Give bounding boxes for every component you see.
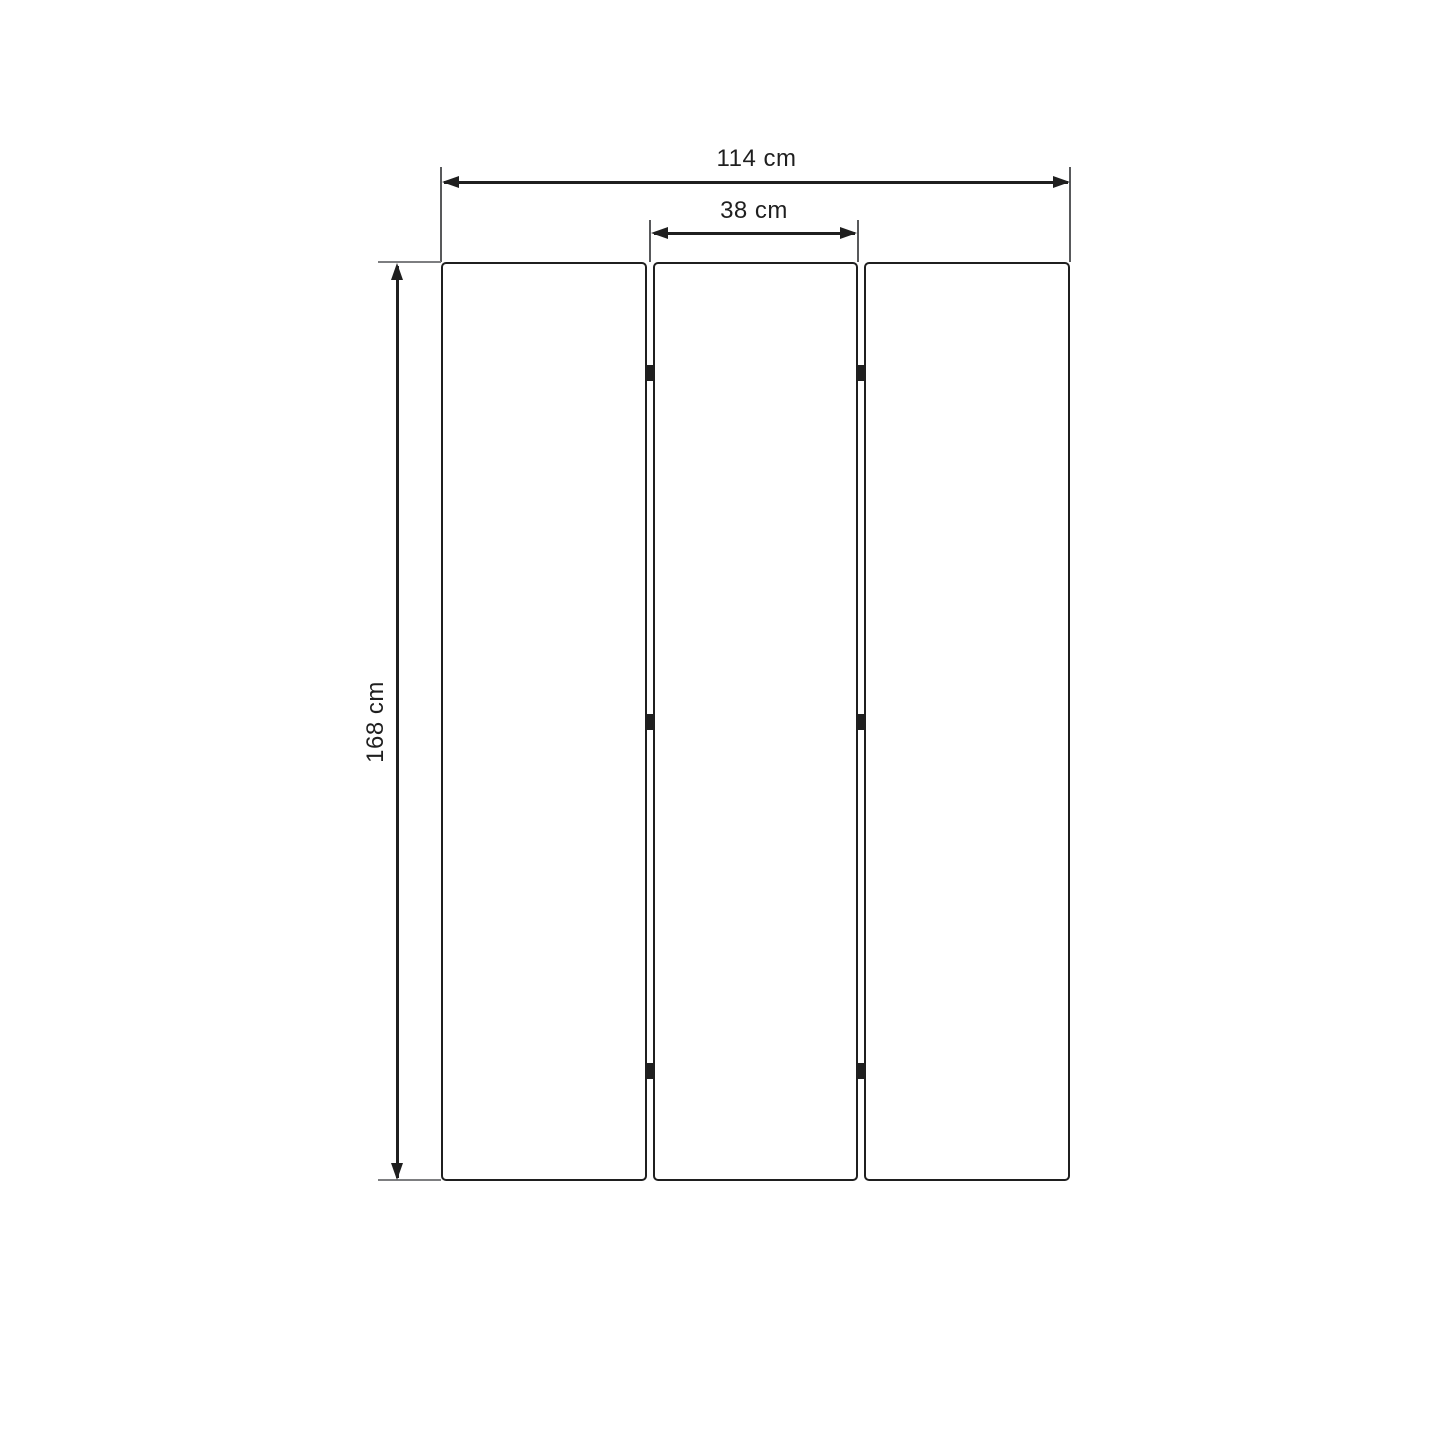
folding-screen-dimension-diagram: 114 cm 38 cm 168 cm bbox=[0, 0, 1445, 1445]
arrowhead-left-icon bbox=[442, 176, 459, 188]
arrowhead-left-icon bbox=[651, 227, 668, 239]
hinge bbox=[857, 1063, 865, 1079]
hinge bbox=[857, 365, 865, 381]
hinge bbox=[857, 714, 865, 730]
hinge bbox=[646, 714, 654, 730]
extension-line bbox=[378, 261, 441, 263]
hinge bbox=[646, 1063, 654, 1079]
arrowhead-right-icon bbox=[840, 227, 857, 239]
arrowhead-down-icon bbox=[391, 1163, 403, 1180]
height-dimension-line bbox=[396, 266, 399, 1178]
total-width-dimension-line bbox=[444, 181, 1068, 184]
arrowhead-up-icon bbox=[391, 263, 403, 280]
height-label: 168 cm bbox=[364, 681, 388, 763]
screen-panel-right bbox=[864, 262, 1070, 1181]
hinge bbox=[646, 365, 654, 381]
arrowhead-right-icon bbox=[1053, 176, 1070, 188]
panel-width-label: 38 cm bbox=[649, 199, 859, 223]
total-width-label: 114 cm bbox=[443, 147, 1070, 171]
extension-line bbox=[857, 220, 859, 262]
screen-panel-left bbox=[441, 262, 647, 1181]
screen-panel-middle bbox=[653, 262, 858, 1181]
panel-width-dimension-line bbox=[654, 232, 855, 235]
extension-line bbox=[378, 1179, 441, 1181]
